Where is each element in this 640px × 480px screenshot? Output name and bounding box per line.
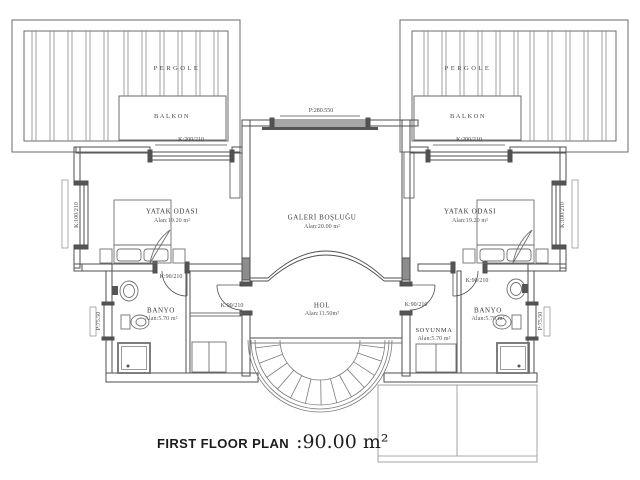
dressing-label: SOYUNMA — [415, 328, 452, 335]
title-area-text: :90.00 m² — [296, 431, 388, 453]
lower-annex-outline — [378, 385, 537, 462]
gallery-label: GALERİ BOŞLUĞU — [288, 215, 357, 222]
bathroom-right-area: Alan:5.70 m² — [472, 316, 505, 322]
window-label-top-left: K:200/210 — [178, 137, 204, 143]
shower-right — [497, 343, 529, 373]
door-label-hall-left: K:90/210 — [221, 303, 244, 309]
sink-right — [507, 279, 528, 299]
window-label-side-right: K:100/210 — [560, 202, 566, 228]
window-label-gallery: P:280.550 — [309, 108, 334, 114]
balkon-left-label: BALKON — [154, 114, 190, 121]
sink-left — [112, 281, 138, 301]
window-label-side-left: K:100/210 — [74, 202, 80, 228]
staircase — [248, 340, 392, 412]
pergola-left-structure — [12, 20, 240, 152]
door-label-bedroom-right: K:90/210 — [466, 278, 489, 284]
pergola-right-label: PERGOLE — [445, 66, 492, 73]
hall-label: HOL — [314, 303, 330, 310]
dressing-area: Alan:5.70 m² — [418, 336, 451, 342]
bedroom-right-label: YATAK ODASI — [444, 209, 496, 216]
door-label-bedroom-left: K:90/210 — [160, 274, 183, 280]
bedroom-right-area: Alan:19.20 m² — [452, 218, 488, 224]
bedroom-left-label: YATAK ODASI — [146, 209, 198, 216]
bathroom-right-label: BANYO — [474, 308, 502, 315]
bedroom-left-area: Alan:19.20 m² — [154, 218, 190, 224]
closet-left-passage — [190, 313, 242, 372]
pergola-right-structure — [400, 20, 628, 152]
balkon-right-label: BALKON — [450, 114, 486, 121]
door-label-hall-right: K:90/210 — [405, 302, 428, 308]
hall-area: Alan:11.50m² — [305, 311, 339, 317]
shower-left — [118, 343, 150, 373]
gallery-area: Alan:20.00 m² — [304, 224, 340, 230]
drawing-title: FIRST FLOOR PLAN :90.00 m² — [157, 431, 389, 453]
bathroom-left-label: BANYO — [147, 308, 175, 315]
wardrobe-dressing — [416, 344, 456, 372]
title-plan-text: FIRST FLOOR PLAN — [157, 436, 289, 451]
window-label-bath-right: P:75.50 — [538, 312, 544, 331]
floor-plan-linework — [0, 0, 640, 480]
window-label-top-right: K:200/210 — [456, 137, 482, 143]
pergola-left-label: PERGOLE — [154, 66, 201, 73]
bathroom-left-area: Alan:5.70 m² — [145, 316, 178, 322]
window-label-bath-left: P:75.50 — [96, 312, 102, 331]
floor-plan-canvas: PERGOLE BALKON PERGOLE BALKON K:200/210 … — [0, 0, 640, 480]
